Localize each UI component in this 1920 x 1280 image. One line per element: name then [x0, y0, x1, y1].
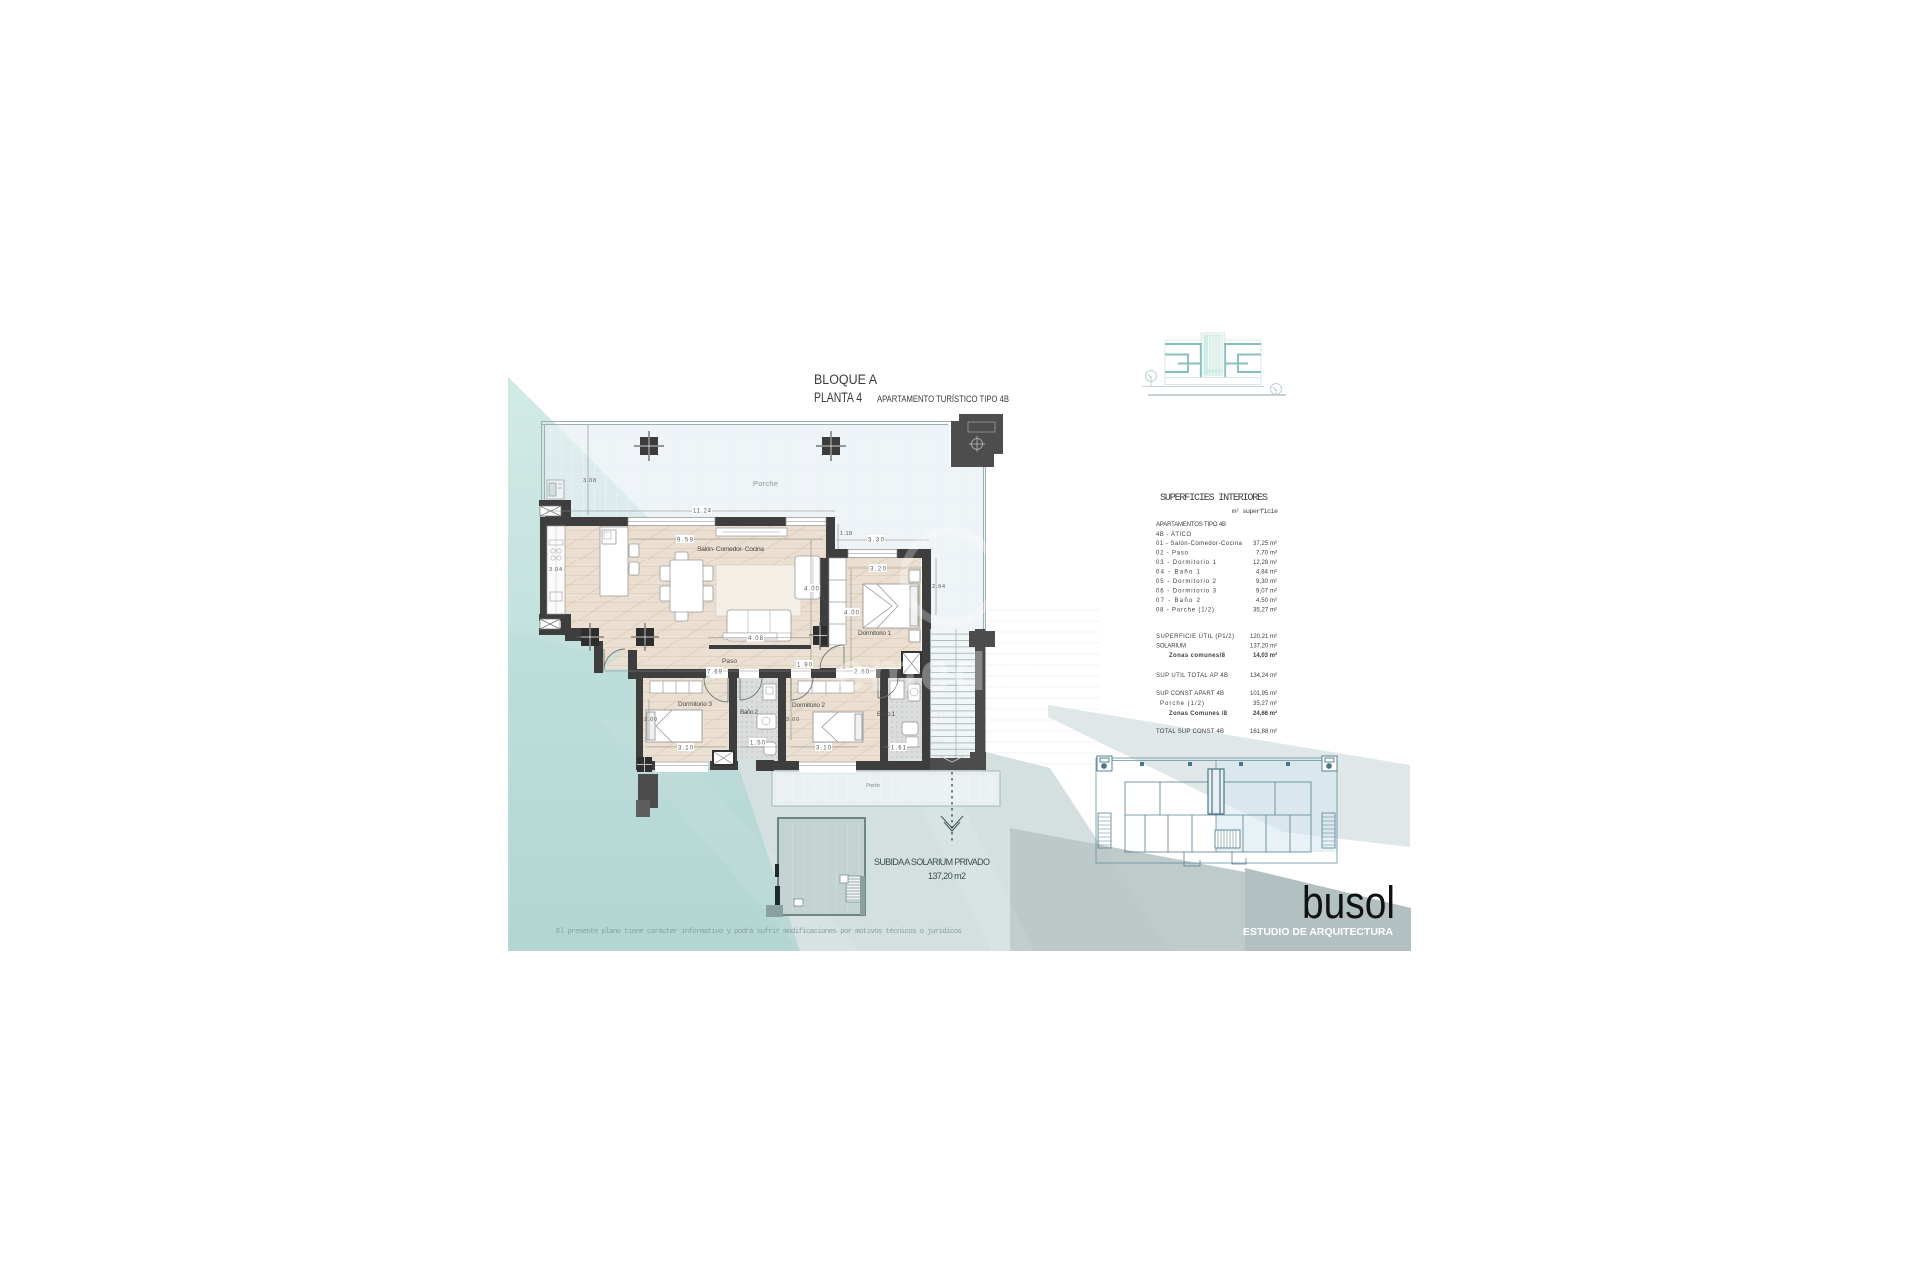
svg-text:TOTAL SUP CONST 4B: TOTAL SUP CONST 4B [1156, 729, 1224, 735]
svg-text:05 - Dormitorio 2: 05 - Dormitorio 2 [1156, 579, 1217, 585]
svg-text:Dormitorio 3: Dormitorio 3 [678, 701, 712, 708]
svg-text:14,03 m²: 14,03 m² [1253, 652, 1277, 659]
svg-text:Paso: Paso [722, 658, 737, 665]
svg-text:3.00: 3.00 [644, 717, 657, 723]
svg-text:4.00: 4.00 [844, 611, 860, 617]
svg-text:02 - Paso: 02 - Paso [1156, 551, 1189, 557]
svg-text:24,66 m²: 24,66 m² [1253, 710, 1277, 717]
svg-text:Dormitorio 2: Dormitorio 2 [792, 702, 825, 709]
svg-text:7.69: 7.69 [707, 670, 723, 676]
svg-text:101,95 m²: 101,95 m² [1250, 691, 1277, 697]
svg-text:9,30 m²: 9,30 m² [1256, 579, 1277, 585]
svg-text:08 - Porche (1/2): 08 - Porche (1/2) [1156, 608, 1214, 614]
svg-text:SUBIDA A SOLARIUM PRIVADO: SUBIDA A SOLARIUM PRIVADO [874, 857, 990, 867]
svg-text:Baño 2: Baño 2 [740, 709, 758, 716]
svg-text:134,24 m²: 134,24 m² [1250, 673, 1277, 679]
svg-text:Baño 1: Baño 1 [877, 711, 895, 718]
svg-text:35,27 m²: 35,27 m² [1253, 701, 1277, 707]
svg-text:120,21 m²: 120,21 m² [1250, 634, 1277, 640]
svg-text:3.00: 3.00 [786, 717, 799, 723]
svg-text:APARTAMENTO TURÍSTICO TIPO 4B: APARTAMENTO TURÍSTICO TIPO 4B [877, 394, 1009, 404]
svg-text:1.61: 1.61 [891, 746, 907, 752]
svg-text:7,70 m²: 7,70 m² [1256, 551, 1277, 557]
svg-text:Dormitorio 1: Dormitorio 1 [858, 630, 891, 637]
svg-text:11.24: 11.24 [693, 509, 712, 515]
svg-text:37,25 m²: 37,25 m² [1253, 541, 1277, 547]
svg-text:161,88 m²: 161,88 m² [1250, 729, 1277, 735]
svg-text:4.00: 4.00 [804, 587, 820, 593]
svg-text:IT N: IT N [905, 711, 952, 722]
svg-text:SUP CONST APART 4B: SUP CONST APART 4B [1156, 691, 1224, 697]
svg-text:PLANTA 4: PLANTA 4 [814, 390, 862, 405]
svg-text:3.30: 3.30 [868, 538, 885, 544]
svg-text:9.59: 9.59 [677, 538, 694, 544]
svg-text:SUPERFICIE ÚTIL (P1/2): SUPERFICIE ÚTIL (P1/2) [1156, 633, 1234, 640]
svg-text:Zonas comunes/8: Zonas comunes/8 [1169, 653, 1226, 659]
svg-text:01 - Salón-Comedor-Cocina: 01 - Salón-Comedor-Cocina [1156, 541, 1243, 547]
svg-text:3.20: 3.20 [870, 567, 887, 573]
svg-text:04 - Baño 1: 04 - Baño 1 [1156, 570, 1201, 576]
svg-text:4,50 m²: 4,50 m² [1256, 598, 1277, 604]
svg-text:BLOQUE A: BLOQUE A [814, 372, 877, 387]
svg-text:Porche: Porche [753, 479, 778, 488]
svg-text:Porche: Porche [866, 783, 880, 789]
svg-text:ESTUDIO DE ARQUITECTURA: ESTUDIO DE ARQUITECTURA [1243, 927, 1393, 938]
svg-text:4B - ÁTICO: 4B - ÁTICO [1156, 531, 1191, 538]
svg-text:3.10: 3.10 [678, 746, 694, 752]
svg-text:busol: busol [1302, 877, 1395, 928]
svg-text:Salón- Comedor- Cocina: Salón- Comedor- Cocina [697, 546, 764, 553]
svg-text:137,20 m2: 137,20 m2 [928, 871, 966, 881]
svg-text:SUP UTIL TOTAL AP 4B: SUP UTIL TOTAL AP 4B [1156, 673, 1228, 679]
svg-text:9,07 m²: 9,07 m² [1256, 589, 1277, 595]
svg-text:1.18: 1.18 [840, 531, 852, 537]
svg-text:4,84 m²: 4,84 m² [1256, 570, 1277, 576]
svg-text:3.10: 3.10 [816, 746, 832, 752]
svg-text:1.90: 1.90 [797, 663, 813, 669]
svg-text:APARTAMENTOS TIPO 4B: APARTAMENTOS TIPO 4B [1156, 522, 1226, 528]
svg-text:Zonas Comunes /8: Zonas Comunes /8 [1169, 711, 1228, 717]
svg-text:4.08: 4.08 [748, 636, 764, 642]
svg-text:06 - Dormitorio 3: 06 - Dormitorio 3 [1156, 589, 1217, 595]
svg-text:SOLARIUM: SOLARIUM [1156, 644, 1186, 650]
svg-text:3.04: 3.04 [549, 567, 562, 573]
svg-text:35,27 m²: 35,27 m² [1253, 608, 1277, 614]
svg-text:El presente plano tiene caráct: El presente plano tiene carácter informa… [556, 928, 962, 936]
svg-text:emedia: emedia [836, 642, 1040, 702]
svg-text:1.50: 1.50 [750, 741, 766, 747]
svg-text:Porche (1/2): Porche (1/2) [1160, 701, 1204, 707]
svg-text:137,20 m²: 137,20 m² [1250, 644, 1277, 650]
svg-text:3.08: 3.08 [583, 478, 596, 484]
svg-text:2.94: 2.94 [932, 584, 945, 590]
svg-text:07 - Baño 2: 07 - Baño 2 [1156, 598, 1201, 604]
svg-text:SUPERFICIES INTERIORES: SUPERFICIES INTERIORES [1160, 493, 1268, 504]
svg-text:m² superficie: m² superficie [1232, 508, 1278, 515]
svg-text:12,28 m²: 12,28 m² [1253, 560, 1277, 566]
svg-text:03 - Dormitorio 1: 03 - Dormitorio 1 [1156, 560, 1217, 566]
